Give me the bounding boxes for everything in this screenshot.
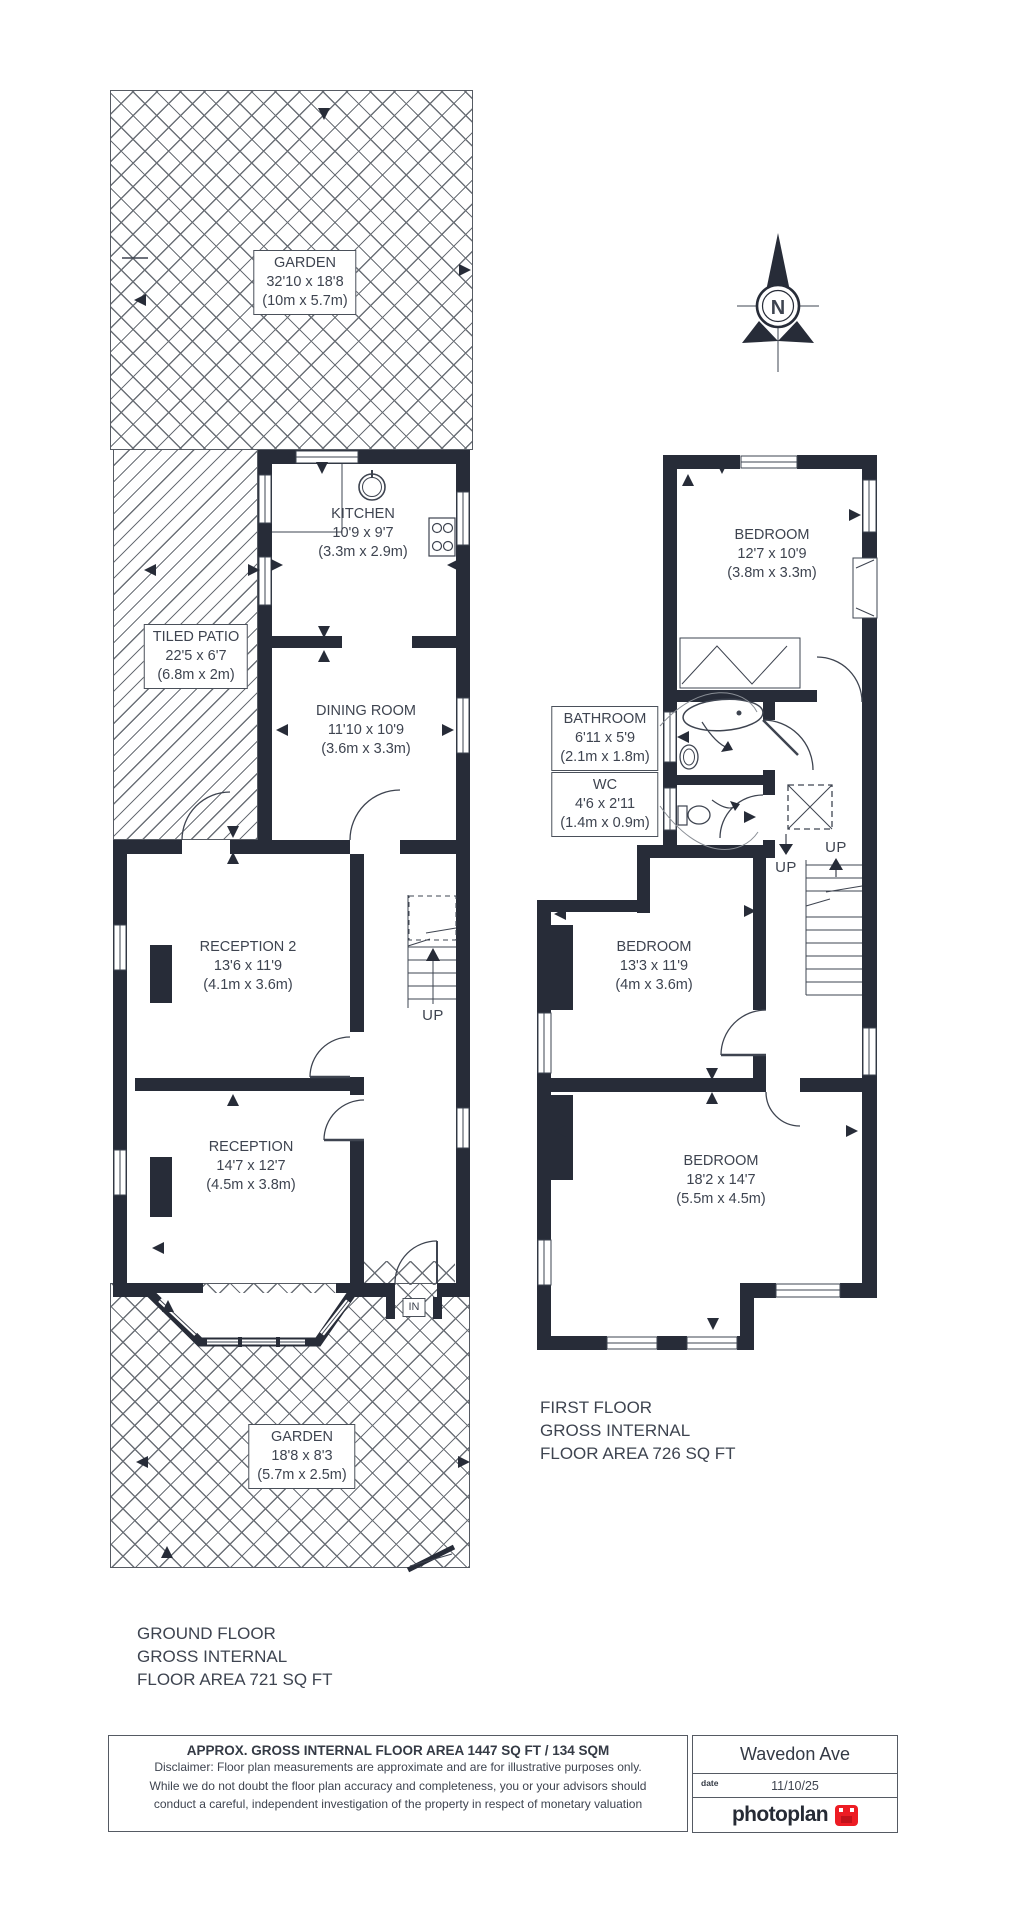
room-size-imperial: 13'6 x 11'9 xyxy=(200,957,297,976)
floorplan-canvas: N GARDEN 32'10 x 18'8 (10m x 5.7m) TILED… xyxy=(0,0,1020,1917)
kitchen-sink-icon xyxy=(359,470,385,500)
disclaimer-line: conduct a careful, independent investiga… xyxy=(109,1795,687,1814)
compass-n-label: N xyxy=(771,297,785,319)
wardrobe-icon xyxy=(680,638,800,688)
address-row: Wavedon Ave xyxy=(693,1736,897,1774)
up-label-first-left: UP xyxy=(775,858,797,877)
room-label-kitchen: KITCHEN 10'9 x 9'7 (3.3m x 2.9m) xyxy=(318,505,407,562)
first-floor-walls xyxy=(537,455,877,1350)
room-label-wc: WC 4'6 x 2'11 (1.4m x 0.9m) xyxy=(551,772,658,837)
caption-line: GROUND FLOOR xyxy=(137,1622,333,1645)
room-size-metric: (1.4m x 0.9m) xyxy=(560,814,649,833)
room-size-metric: (3.6m x 3.3m) xyxy=(316,740,416,759)
room-size-imperial: 22'5 x 6'7 xyxy=(153,647,239,666)
compass-north-icon: N xyxy=(737,233,819,372)
room-label-reception: RECEPTION 14'7 x 12'7 (4.5m x 3.8m) xyxy=(206,1138,295,1195)
room-label-garden-bottom: GARDEN 18'8 x 8'3 (5.7m x 2.5m) xyxy=(248,1424,355,1489)
footer-disclaimer-box: APPROX. GROSS INTERNAL FLOOR AREA 1447 S… xyxy=(108,1735,688,1832)
footer-area-title: APPROX. GROSS INTERNAL FLOOR AREA 1447 S… xyxy=(109,1743,687,1758)
room-size-metric: (2.1m x 1.8m) xyxy=(560,748,649,767)
room-size-metric: (5.5m x 4.5m) xyxy=(676,1190,765,1209)
room-size-imperial: 12'7 x 10'9 xyxy=(727,545,816,564)
room-size-imperial: 18'2 x 14'7 xyxy=(676,1171,765,1190)
room-size-metric: (4.1m x 3.6m) xyxy=(200,976,297,995)
room-name: RECEPTION xyxy=(206,1138,295,1157)
room-size-metric: (4m x 3.6m) xyxy=(615,976,692,995)
in-label: IN xyxy=(403,1298,426,1317)
date-value: 11/10/25 xyxy=(771,1779,819,1793)
room-size-metric: (5.7m x 2.5m) xyxy=(257,1466,346,1485)
room-label-dining: DINING ROOM 11'10 x 10'9 (3.6m x 3.3m) xyxy=(316,702,416,759)
footer-info-box: Wavedon Ave date 11/10/25 photoplan xyxy=(692,1735,898,1833)
room-name: GARDEN xyxy=(262,254,347,273)
room-size-metric: (6.8m x 2m) xyxy=(153,666,239,685)
disclaimer-line: Disclaimer: Floor plan measurements are … xyxy=(109,1758,687,1777)
ground-floor-caption: GROUND FLOOR GROSS INTERNAL FLOOR AREA 7… xyxy=(137,1622,333,1691)
disclaimer-line: While we do not doubt the floor plan acc… xyxy=(109,1777,687,1796)
room-label-bedroom2: BEDROOM 13'3 x 11'9 (4m x 3.6m) xyxy=(615,938,692,995)
room-name: KITCHEN xyxy=(318,505,407,524)
kitchen-hob-icon xyxy=(429,518,455,556)
room-name: BEDROOM xyxy=(676,1152,765,1171)
room-name: DINING ROOM xyxy=(316,702,416,721)
room-size-imperial: 4'6 x 2'11 xyxy=(560,795,649,814)
logo-mouth xyxy=(841,1816,852,1823)
logo-eye-right xyxy=(850,1808,854,1812)
caption-line: GROSS INTERNAL xyxy=(137,1645,333,1668)
skylight-icon xyxy=(788,785,832,829)
room-size-metric: (4.5m x 3.8m) xyxy=(206,1176,295,1195)
room-name: BEDROOM xyxy=(727,526,816,545)
date-label: date xyxy=(701,1778,718,1788)
first-staircase xyxy=(806,860,862,995)
garden-gate xyxy=(408,1547,454,1570)
room-label-bedroom3: BEDROOM 18'2 x 14'7 (5.5m x 4.5m) xyxy=(676,1152,765,1209)
bathroom-sink-icon xyxy=(680,745,698,769)
photoplan-camera-icon xyxy=(835,1805,858,1826)
room-size-imperial: 14'7 x 12'7 xyxy=(206,1157,295,1176)
room-size-metric: (10m x 5.7m) xyxy=(262,292,347,311)
room-label-bedroom1: BEDROOM 12'7 x 10'9 (3.8m x 3.3m) xyxy=(727,526,816,583)
photoplan-wordmark: photoplan xyxy=(732,1803,828,1827)
logo-eye-left xyxy=(839,1808,843,1812)
bay-window xyxy=(150,1293,352,1347)
chimney-recess xyxy=(853,558,877,618)
room-name: GARDEN xyxy=(257,1428,346,1447)
toilet-icon xyxy=(678,800,740,825)
caption-line: FLOOR AREA 721 SQ FT xyxy=(137,1668,333,1691)
room-label-garden-top: GARDEN 32'10 x 18'8 (10m x 5.7m) xyxy=(253,250,356,315)
room-size-metric: (3.3m x 2.9m) xyxy=(318,543,407,562)
room-name: BATHROOM xyxy=(560,710,649,729)
room-label-reception2: RECEPTION 2 13'6 x 11'9 (4.1m x 3.6m) xyxy=(200,938,297,995)
caption-line: GROSS INTERNAL xyxy=(540,1419,736,1442)
ground-staircase xyxy=(408,895,456,1008)
room-name: BEDROOM xyxy=(615,938,692,957)
caption-line: FIRST FLOOR xyxy=(540,1396,736,1419)
first-floor-caption: FIRST FLOOR GROSS INTERNAL FLOOR AREA 72… xyxy=(540,1396,736,1465)
up-label-ground: UP xyxy=(422,1006,444,1025)
caption-line: FLOOR AREA 726 SQ FT xyxy=(540,1442,736,1465)
room-size-imperial: 6'11 x 5'9 xyxy=(560,729,649,748)
room-name: TILED PATIO xyxy=(153,628,239,647)
up-label-first-right: UP xyxy=(825,838,847,857)
room-name: RECEPTION 2 xyxy=(200,938,297,957)
room-size-imperial: 18'8 x 8'3 xyxy=(257,1447,346,1466)
property-address: Wavedon Ave xyxy=(740,1744,850,1765)
room-size-imperial: 10'9 x 9'7 xyxy=(318,524,407,543)
photoplan-logo: photoplan xyxy=(693,1798,897,1832)
room-label-tiled-patio: TILED PATIO 22'5 x 6'7 (6.8m x 2m) xyxy=(144,624,248,689)
room-size-imperial: 13'3 x 11'9 xyxy=(615,957,692,976)
room-size-imperial: 32'10 x 18'8 xyxy=(262,273,347,292)
date-row: date 11/10/25 xyxy=(693,1774,897,1798)
ground-floor-doors xyxy=(182,790,437,1283)
room-label-bathroom: BATHROOM 6'11 x 5'9 (2.1m x 1.8m) xyxy=(551,706,658,771)
room-size-imperial: 11'10 x 10'9 xyxy=(316,721,416,740)
room-size-metric: (3.8m x 3.3m) xyxy=(727,564,816,583)
room-name: WC xyxy=(560,776,649,795)
